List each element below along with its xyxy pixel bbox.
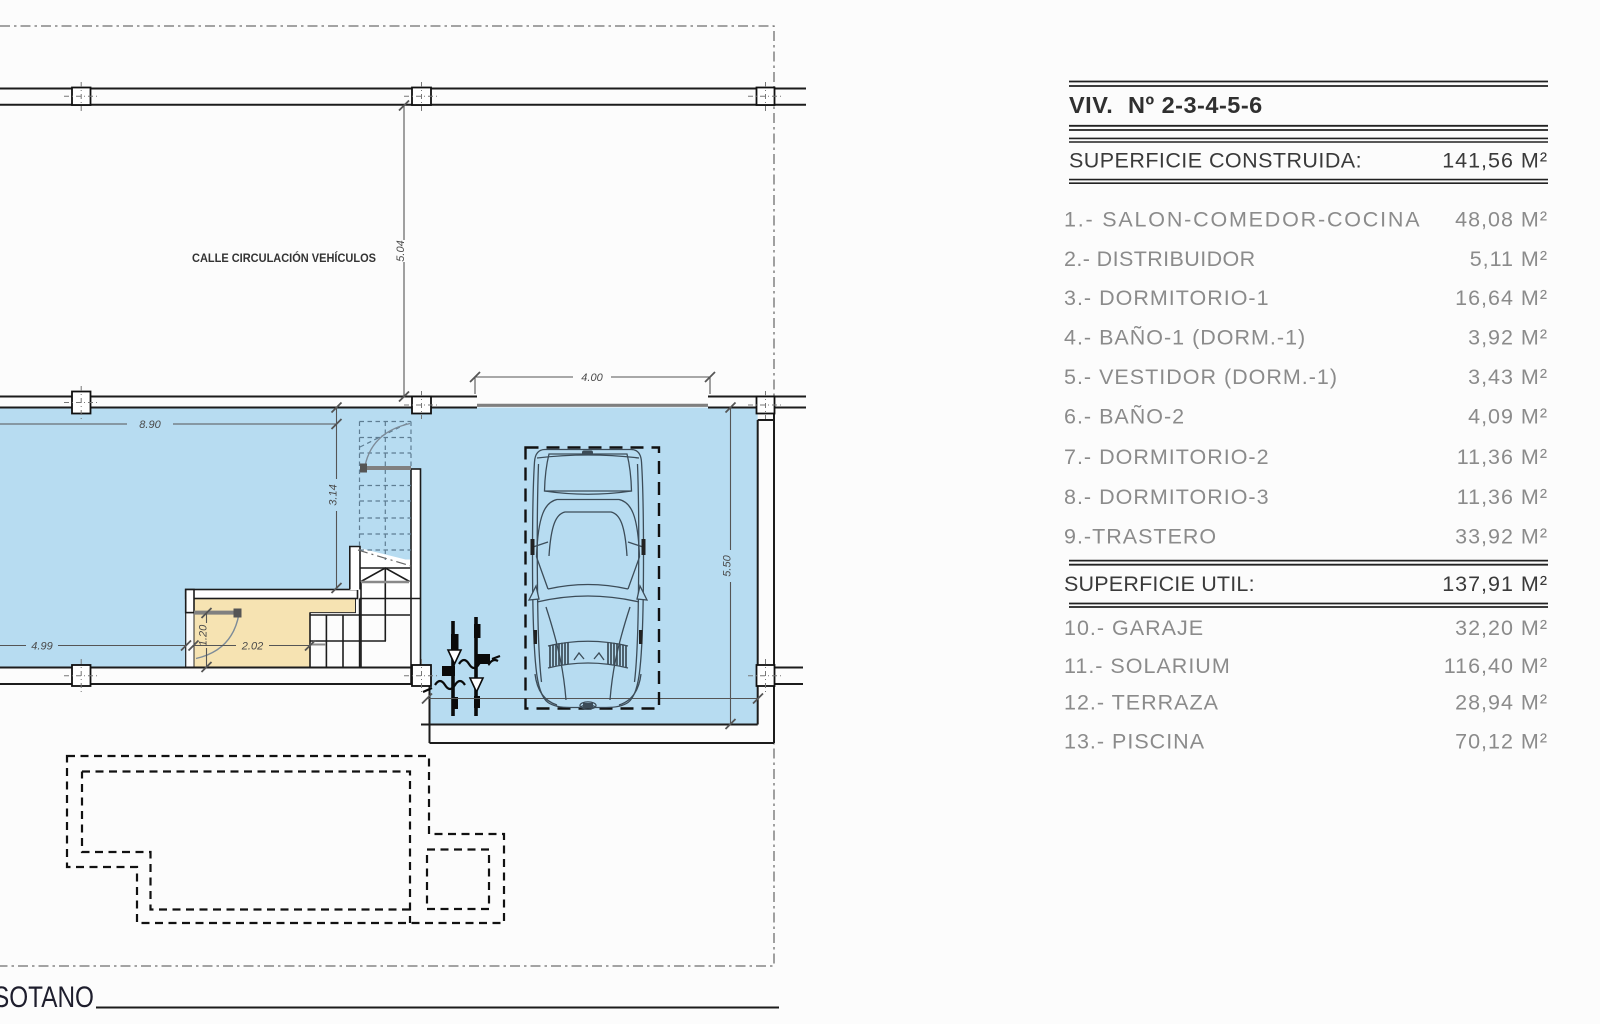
svg-text:1.- SALON-COMEDOR-COCINA: 1.- SALON-COMEDOR-COCINA [1064,208,1421,232]
svg-text:4,09 M²: 4,09 M² [1468,405,1548,429]
svg-text:3,92 M²: 3,92 M² [1468,326,1548,350]
svg-text:SUPERFICIE UTIL:: SUPERFICIE UTIL: [1064,572,1255,596]
svg-text:141,56 M²: 141,56 M² [1442,149,1548,173]
svg-text:48,08 M²: 48,08 M² [1455,208,1548,232]
svg-text:28,94 M²: 28,94 M² [1455,691,1548,715]
svg-text:4.99: 4.99 [31,641,52,653]
svg-text:CALLE CIRCULACIÓN VEHÍCULOS: CALLE CIRCULACIÓN VEHÍCULOS [192,252,376,265]
svg-text:1.20: 1.20 [198,624,210,646]
svg-text:9.-TRASTERO: 9.-TRASTERO [1064,525,1217,549]
svg-text:8.90: 8.90 [139,419,161,431]
svg-text:3.- DORMITORIO-1: 3.- DORMITORIO-1 [1064,286,1270,310]
svg-text:32,20 M²: 32,20 M² [1455,616,1548,640]
svg-text:VIV.: VIV. [1069,92,1113,118]
svg-text:11.- SOLARIUM: 11.- SOLARIUM [1064,654,1231,678]
svg-text:10.- GARAJE: 10.- GARAJE [1064,616,1204,640]
svg-text:5.04: 5.04 [395,240,407,261]
svg-text:5,11 M²: 5,11 M² [1470,247,1548,271]
svg-text:3.14: 3.14 [328,484,340,505]
svg-text:33,92 M²: 33,92 M² [1455,525,1548,549]
svg-text:4.- BAÑO-1 (DORM.-1): 4.- BAÑO-1 (DORM.-1) [1064,325,1306,350]
svg-text:6.- BAÑO-2: 6.- BAÑO-2 [1064,404,1185,429]
svg-text:2.- DISTRIBUIDOR: 2.- DISTRIBUIDOR [1064,247,1256,271]
svg-text:11,36 M²: 11,36 M² [1457,445,1548,469]
svg-text:5.50: 5.50 [722,554,734,576]
svg-text:137,91 M²: 137,91 M² [1442,572,1548,596]
svg-text:8.- DORMITORIO-3: 8.- DORMITORIO-3 [1064,485,1270,509]
svg-text:4.00: 4.00 [581,372,603,384]
svg-text:Nº 2-3-4-5-6: Nº 2-3-4-5-6 [1128,92,1263,118]
svg-text:5.- VESTIDOR (DORM.-1): 5.- VESTIDOR (DORM.-1) [1064,365,1338,389]
svg-text:116,40 M²: 116,40 M² [1444,654,1548,678]
svg-text:3,43 M²: 3,43 M² [1468,365,1548,389]
svg-text:70,12 M²: 70,12 M² [1455,730,1548,754]
svg-text:2.02: 2.02 [241,641,263,653]
svg-text:SUPERFICIE CONSTRUIDA:: SUPERFICIE CONSTRUIDA: [1069,149,1362,173]
svg-text:SOTANO: SOTANO [0,981,94,1014]
svg-text:7.- DORMITORIO-2: 7.- DORMITORIO-2 [1064,445,1270,469]
svg-text:12.- TERRAZA: 12.- TERRAZA [1064,691,1219,715]
svg-text:13.- PISCINA: 13.- PISCINA [1064,730,1205,754]
svg-text:11,36 M²: 11,36 M² [1457,485,1548,509]
svg-text:16,64 M²: 16,64 M² [1455,286,1548,310]
